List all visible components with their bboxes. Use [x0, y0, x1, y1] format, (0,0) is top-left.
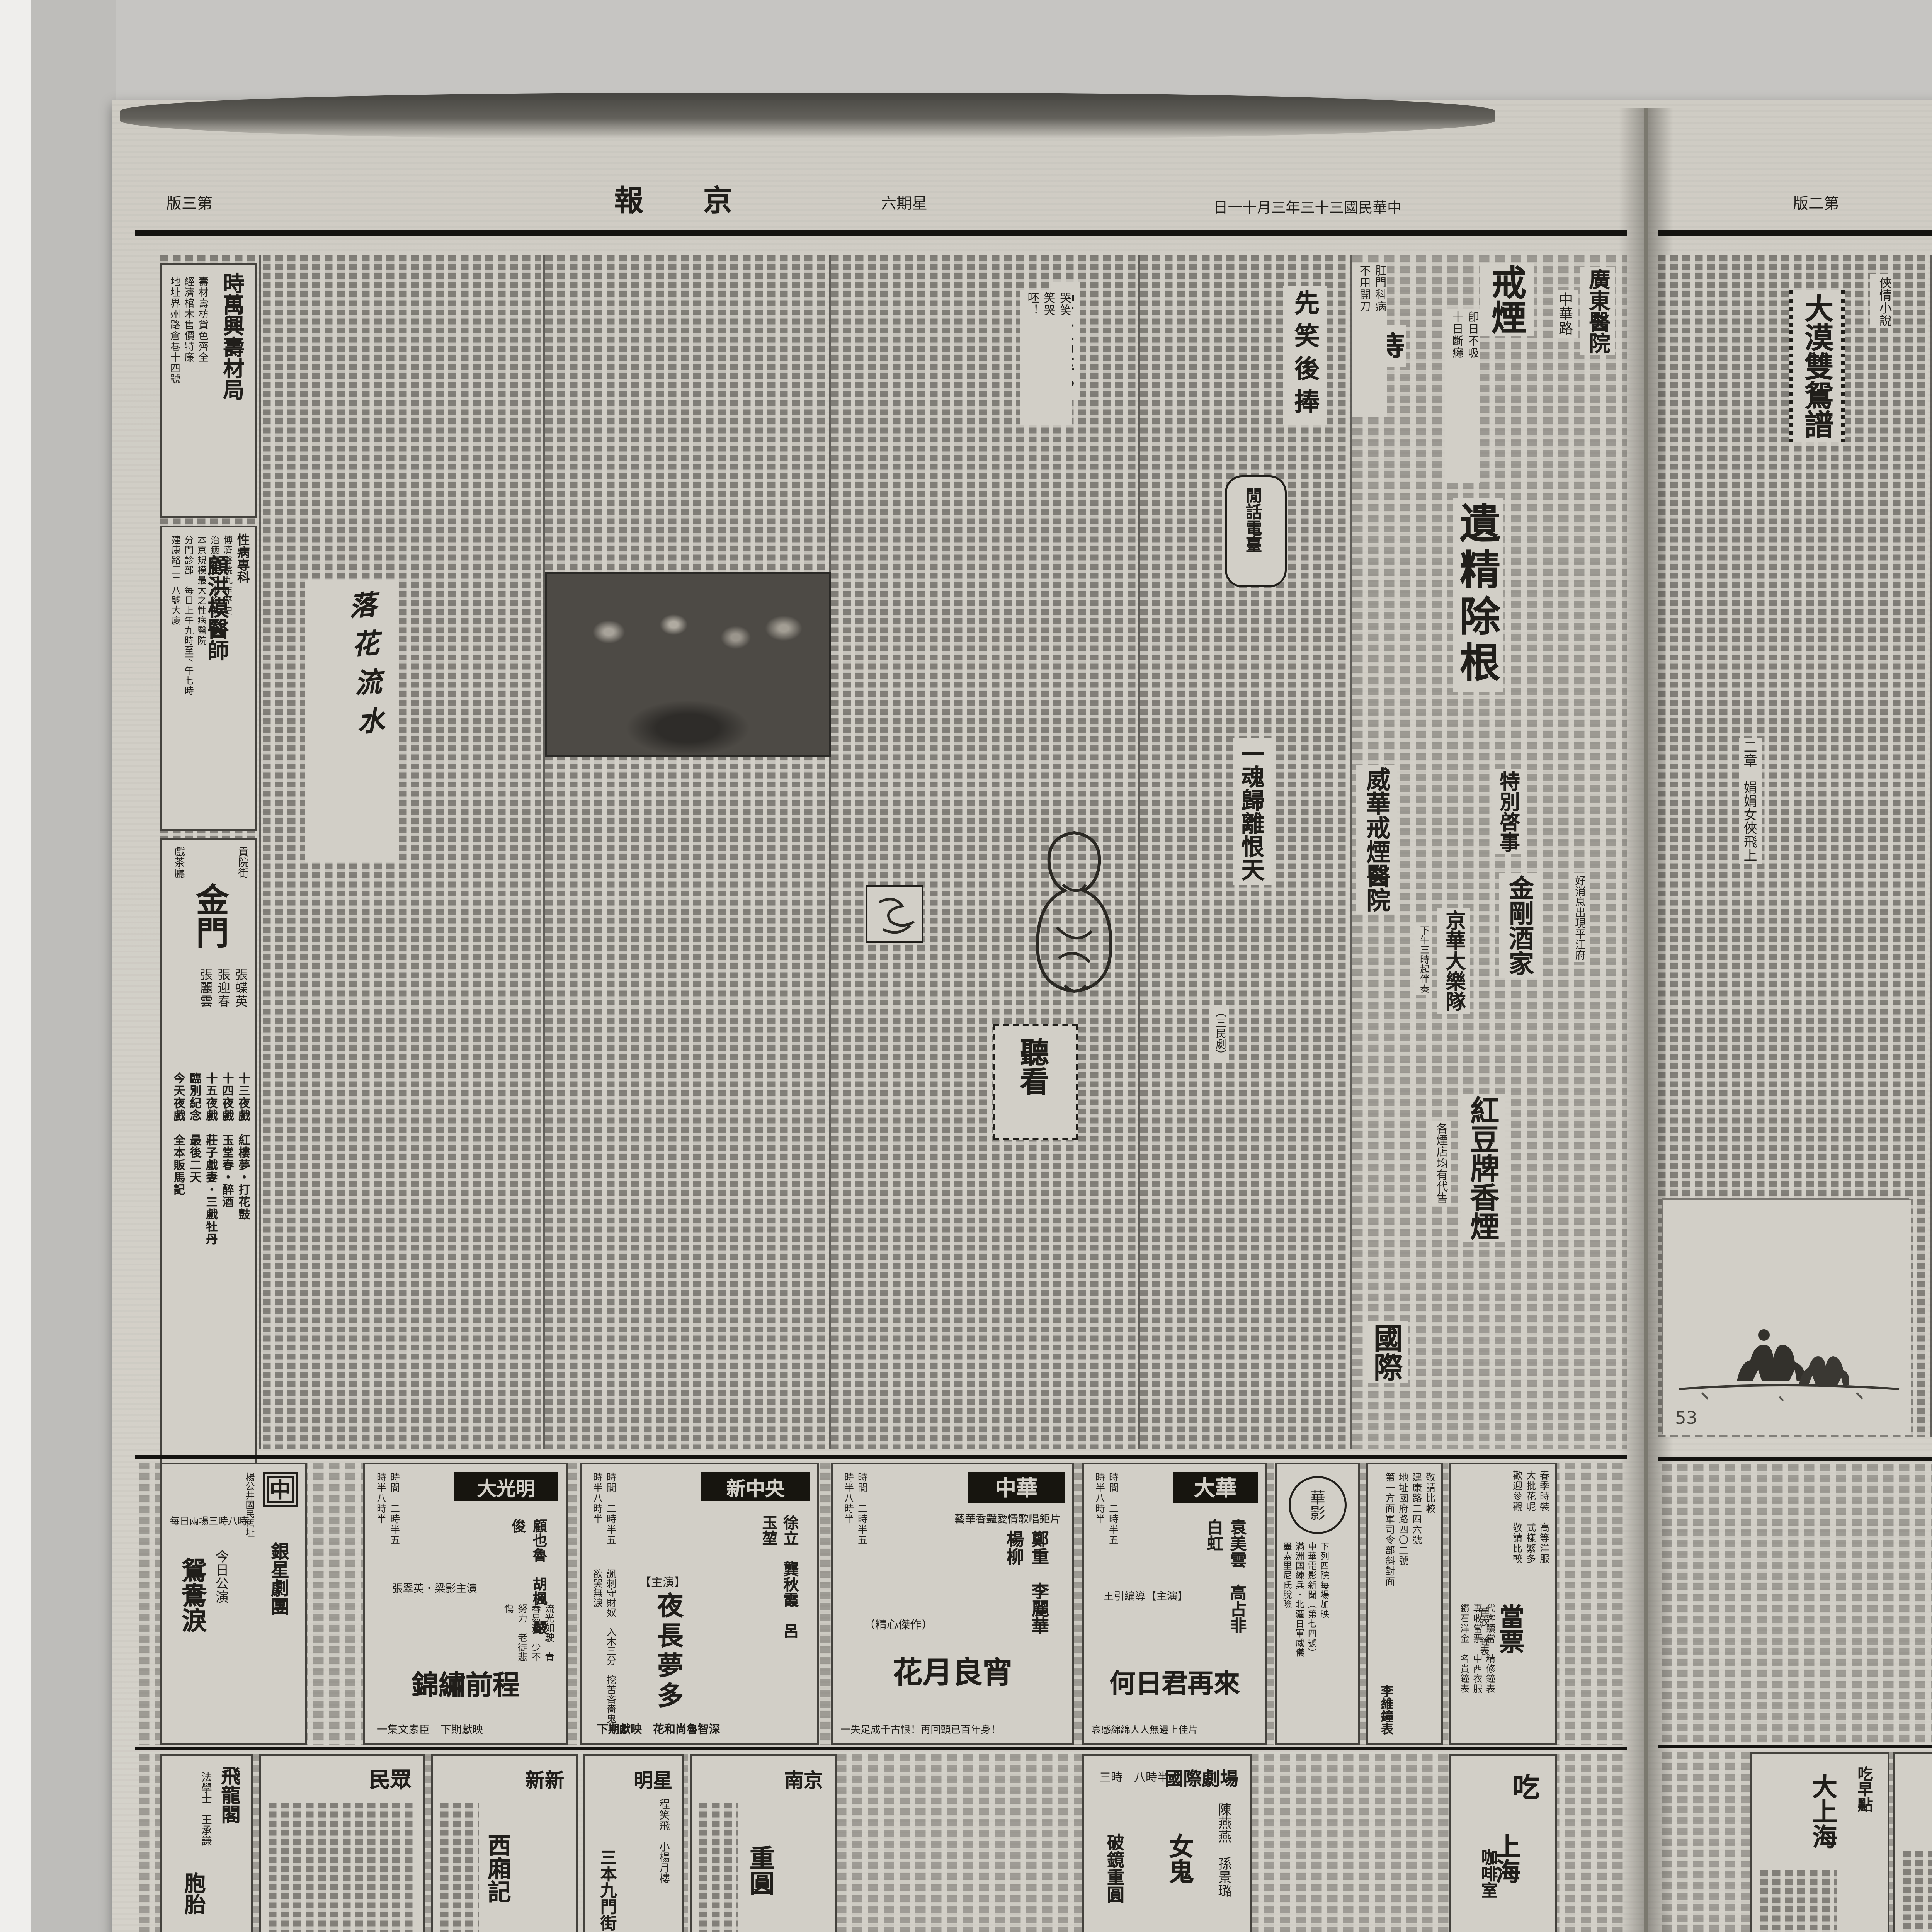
column-rule	[1350, 255, 1352, 1449]
ad-guhongmo-doctor: 性病專科 顧洪模醫師 博濟醫院九年歷史 治癒病人二十餘萬 本京規模最大之性病醫院…	[160, 526, 257, 831]
cinema-kicker: 藝華香豔愛情歌唱鉅片	[954, 1511, 1061, 1526]
cinema-footer: 一失足成千古恨！再回頭已百年身！	[840, 1723, 1001, 1737]
cinema-logo: 大光明	[454, 1472, 558, 1501]
gd-quit-lines: 卽日不吸 十日斷癮	[1445, 309, 1480, 483]
gd-cigarette-brand: 紅豆牌香煙	[1461, 1094, 1505, 1242]
soul-drama-sub: （三民劇）	[1209, 1005, 1229, 1062]
theatre-plays2: 破鏡重圓	[1103, 1833, 1128, 1903]
stamp-box	[866, 885, 923, 943]
cinema-footer: 哀感綿綿人人無邊上佳片	[1092, 1723, 1198, 1737]
ad-lines: 代客贖當 精修鐘表 專收當票 中西衣服 鑽石洋金 名貴鐘表	[1455, 1604, 1494, 1739]
steps-quote-smalls: 哭笑 笑哭 呸！	[1020, 290, 1073, 425]
gd-band-note: 下午三時起伴奏	[1414, 923, 1432, 995]
cinema-film: 鴛鴦淚	[174, 1557, 211, 1633]
cinema-credit: （精心傑作）	[864, 1615, 933, 1633]
column-rule	[543, 255, 544, 1449]
right-page-edition: 版二第	[1793, 193, 1839, 214]
fallen-flowers-title-block: 落花流水	[305, 580, 398, 862]
cinema-logo-text: 大華	[1194, 1472, 1236, 1503]
ad-title: 李維鐘表	[1374, 1685, 1393, 1735]
left-header-rule	[135, 230, 1627, 235]
svg-text:53: 53	[1675, 1408, 1697, 1428]
cinema-logo-text: 新中央	[726, 1472, 784, 1501]
ad-lines: 壽材壽枋貨色齊全 經濟棺木售價特廉 地址界州路倉巷十四號	[166, 276, 208, 512]
gd-band: 京華大樂隊	[1437, 908, 1470, 1014]
cinema-cast: 徐立 龔秋霞 呂玉堃	[759, 1515, 802, 1650]
cinema-times: 時間 二時半五時半八時半	[589, 1472, 616, 1549]
ad-texture	[1760, 1870, 1837, 1932]
listen-article-title-box: 聽看	[993, 1024, 1078, 1140]
cinema-dahua: 大華 時間 二時半五時半八時半 袁美雲 高占非 白虹 王引編導【主演】 何日君再…	[1082, 1463, 1267, 1745]
gd-hospital-road: 中華路	[1553, 290, 1578, 337]
ad-texture	[440, 1803, 479, 1932]
ad-texture	[699, 1803, 738, 1932]
cinema-xinzhongyang: 新中央 時間 二時半五時半八時半 徐立 龔秋霞 呂玉堃 【主演】 夜長夢多 諷刺…	[580, 1463, 819, 1745]
theatre-cast: 陳燕燕 孫景璐	[1215, 1803, 1235, 1918]
cinema-cast: 鄭重 李麗華 楊柳	[1003, 1530, 1053, 1665]
ad-texture	[1903, 1851, 1932, 1932]
ad-sub: 咖啡室	[1478, 1849, 1501, 1898]
theatre-line: 程笑飛 小楊月樓	[655, 1799, 670, 1884]
cinema-logo: 新中央	[701, 1472, 810, 1501]
cinema-credit: 王引編導【主演】	[1103, 1588, 1188, 1604]
zhong-logo-char: 中	[270, 1474, 291, 1505]
cinema-film: 花月良宵	[893, 1650, 1012, 1692]
ad-lines: 博濟醫院九年歷史 治癒病人二十餘萬 本京規模最大之性病醫院 分門診部 每日上午九…	[166, 535, 231, 825]
ad-title: 大上海	[1804, 1774, 1841, 1849]
theatre-times: 三時 八時半	[1099, 1768, 1169, 1785]
cinema-logo-text: 大光明	[477, 1472, 535, 1501]
left-rowA-rule	[135, 1455, 1627, 1459]
cinema-times: 時間 二時半五時半八時半	[373, 1472, 400, 1549]
theatre-title: 新新	[526, 1764, 564, 1793]
theatre-plays: 西廂記	[483, 1833, 516, 1903]
ad-dashanghai: 吃早點 大上海	[1750, 1752, 1889, 1932]
listen-article-title: 聽看	[1012, 1037, 1053, 1095]
cinema-troupe: 銀星劇團	[263, 1542, 290, 1615]
ad-jinmen-theatre: 貢院街 戲茶廳 金門 張蝶英 張迎春 張麗雲 十三夜戲 紅樓夢・打花鼓 十四夜戲…	[160, 838, 257, 1464]
cinema-zhong-silverstar: 中 楊公井國民舊址 每日兩場三時八時 銀星劇團 今日公演 鴛鴦淚	[160, 1463, 307, 1745]
scan-edge-white	[0, 0, 31, 1932]
cinema-times: 每日兩場三時八時	[170, 1515, 247, 1528]
scan-edge-gray	[31, 0, 116, 1932]
gourd-calligraphy-logo	[1032, 827, 1117, 1024]
theatre-plays: 女鬼	[1161, 1833, 1198, 1884]
top-edge-smudge	[120, 93, 1495, 139]
theatre-nanjing: 南京 重圓	[690, 1754, 837, 1932]
cinema-footer: 一集文素臣 下期獻映	[377, 1721, 483, 1737]
radio-chat-box: 閒話電臺	[1225, 475, 1287, 587]
camel-illustration: 53	[1662, 1198, 1909, 1434]
theatre-plays: 重圓	[742, 1845, 779, 1895]
gd-jingang-note: 好消息出現平江府	[1569, 873, 1588, 962]
theatre-title: 南京	[784, 1764, 823, 1793]
theatre-title: 民眾	[369, 1764, 412, 1795]
ad-pawn-ticket: 春季時裝 高等洋服 大批花呢 式樣繁多 歡迎參觀 敬請比較 當票 舊衣 鐘表 代…	[1449, 1463, 1557, 1745]
cinema-film: 錦繡前程	[412, 1665, 520, 1704]
cinema-film: 夜長夢多	[647, 1592, 686, 1712]
cinema-zhonghua: 中華 時間 二時半五時半八時半 藝華香豔愛情歌唱鉅片 鄭重 李麗華 楊柳 （精心…	[831, 1463, 1074, 1745]
theatre-minzhong: 民眾	[259, 1754, 425, 1932]
serial-genre: 俠情小說	[1870, 274, 1893, 328]
theatre-title: 明星	[634, 1764, 672, 1793]
ad-kicker: 吃	[1513, 1768, 1540, 1806]
left-page-masthead: 報 京	[614, 180, 748, 220]
right-header-rule	[1658, 230, 1932, 235]
text-mat	[263, 255, 541, 1449]
right-rowB-rule	[1658, 1745, 1932, 1748]
radio-chat-title: 閒話電臺	[1242, 487, 1265, 553]
column-rule	[829, 255, 830, 1449]
gd-weihua: 威華戒煙醫院	[1356, 765, 1397, 914]
serial-title: 大漠雙鴛譜	[1789, 290, 1845, 442]
gd-intl-brand: 國際	[1364, 1321, 1408, 1383]
theatre-title: 飛龍閣	[213, 1766, 241, 1824]
cinema-note: 今日公演	[213, 1549, 232, 1604]
cinema-logo: 大華	[1173, 1472, 1258, 1503]
huaying-logo: 華影	[1289, 1476, 1347, 1534]
theatre-title: 國際劇場	[1165, 1764, 1238, 1791]
ad-title: 當票	[1492, 1604, 1528, 1654]
news-photo	[545, 572, 831, 757]
theatre-guoji: 國際劇場 三時 八時半 陳燕燕 孫景璐 女鬼 破鏡重圓	[1082, 1754, 1252, 1932]
cinema-daguangming: 大光明 時間 二時半五時半八時半 顧也魯 胡楓 嚴俊 張翠英・梁影主演 流光如駛…	[363, 1463, 568, 1745]
text-mat	[545, 255, 827, 1449]
gd-cure-headline: 遺精除根	[1453, 498, 1503, 692]
gd-hospital-name: 廣東醫院	[1580, 267, 1615, 355]
ad-texture	[269, 1803, 415, 1932]
theatre-sub: 戲茶廳	[170, 846, 185, 878]
ad-texture	[1662, 1464, 1932, 1743]
gd-cigarette-note: 各煙店均有代售	[1430, 1121, 1451, 1206]
left-page-weekday: 六期星	[881, 193, 927, 214]
ad-kicker: 吃早點	[1855, 1766, 1876, 1812]
gd-pile-lines: 肛門科病 不用開刀	[1352, 263, 1388, 417]
cinema-cast: 袁美雲 高占非 白虹	[1204, 1519, 1250, 1646]
theatre-mingxing: 明星 程笑飛 小楊月樓 三本九門街	[583, 1754, 684, 1932]
soul-drama-title: 一魂歸離恨天	[1233, 738, 1273, 885]
newspaper-scan: 版三第 報 京 六期星 日一十月三年三十三國民華中 版二第 六期星 報 京 日一…	[0, 0, 1932, 1932]
theatre-feilongge: 飛龍閣 法學士 王承謙 胞胎 雙雙	[160, 1754, 253, 1932]
gd-quit-smoking: 戒煙	[1480, 263, 1534, 336]
left-rowB-rule	[135, 1747, 1627, 1750]
theatre-line: 法學士 王承謙	[197, 1772, 213, 1846]
ad-lines: 敬請比較 建康路二四六號 地址國府路四〇二號 第一方面軍司令部斜對面	[1381, 1472, 1435, 1704]
theatre-plays: 三本九門街	[597, 1849, 620, 1931]
cinema-times: 時間 二時半五時半八時半	[840, 1472, 867, 1549]
ad-rongbaozhai-paper: 榮寶齋 書紙店	[1893, 1752, 1932, 1932]
right-rowA-rule	[1658, 1457, 1932, 1461]
cinema-slogans: 流光如駛 青春易逝 少不努力 老徒悲傷	[500, 1604, 554, 1669]
cinema-logo-text: 中華	[995, 1472, 1037, 1503]
cinema-logo: 中華	[968, 1472, 1065, 1503]
ad-lines: 下列四院每場加映 中華電影新聞（第七四號） 滿洲國練兵・北疆日軍威儀 墨索里尼氏…	[1281, 1542, 1330, 1735]
ad-shanghai-coffee: 吃 上海 咖啡室 名師烹調 經濟實惠	[1449, 1754, 1557, 1932]
theatre-title: 金門	[185, 883, 233, 949]
center-fold-crease	[1644, 108, 1649, 1932]
ad-kicker: 性病專科	[230, 533, 249, 583]
cinema-credit: 【主演】	[639, 1573, 686, 1590]
theatre-plays: 胞胎 雙雙	[178, 1872, 209, 1932]
cinema-credit: 張翠英・梁影主演	[392, 1580, 477, 1596]
ad-top-lines: 春季時裝 高等洋服 大批花呢 式樣繁多 歡迎參觀 敬請比較	[1509, 1470, 1549, 1594]
theatre-playbill: 十三夜戲 紅樓夢・打花鼓 十四夜戲 玉堂春・醉酒 十五夜戲 莊子戲妻・三戲牡丹 …	[168, 1072, 249, 1455]
huaying-logo-text: 華影	[1307, 1490, 1328, 1520]
ad-title: 時萬興壽材局	[216, 272, 247, 400]
cinema-footer: 下期獻映 花和尚魯智深	[597, 1719, 720, 1737]
cinema-film: 何日君再來	[1109, 1662, 1240, 1700]
cinema-slogans: 諷刺守財奴 入木三分 挖苦吝嗇鬼 欲哭無淚	[589, 1569, 616, 1723]
cinema-times: 時間 二時半五時半八時半	[1092, 1472, 1119, 1549]
theatre-kicker: 貢院街	[234, 846, 249, 878]
serial-chapter: 二章 娟娟女俠飛上	[1739, 738, 1762, 864]
left-page-edition: 版三第	[166, 193, 213, 214]
ad-coffin-shop: 時萬興壽材局 壽材壽枋貨色齊全 經濟棺木售價特廉 地址界州路倉巷十四號	[160, 263, 257, 518]
fallen-flowers-title: 落花流水	[338, 590, 388, 747]
ad-huaying-newsreel: 華影 下列四院每場加映 中華電影新聞（第七四號） 滿洲國練兵・北疆日軍威儀 墨索…	[1275, 1463, 1360, 1745]
column-rule	[1138, 255, 1139, 1449]
gd-jingang: 金剛酒家	[1499, 873, 1540, 978]
ad-liwei-watch: 敬請比較 建康路二四六號 地址國府路四〇二號 第一方面軍司令部斜對面 李維鐘表	[1366, 1463, 1443, 1745]
laugh-article-title: 先笑後捧	[1283, 286, 1327, 425]
gd-notice: 特別啓事	[1492, 769, 1524, 854]
theatre-xinxin: 新新 西廂記	[431, 1754, 578, 1932]
left-page-date: 日一十月三年三十三國民華中	[1213, 197, 1402, 218]
column-rule	[259, 255, 260, 1449]
column-rule	[1930, 255, 1932, 1437]
zhong-logo: 中	[263, 1472, 298, 1507]
